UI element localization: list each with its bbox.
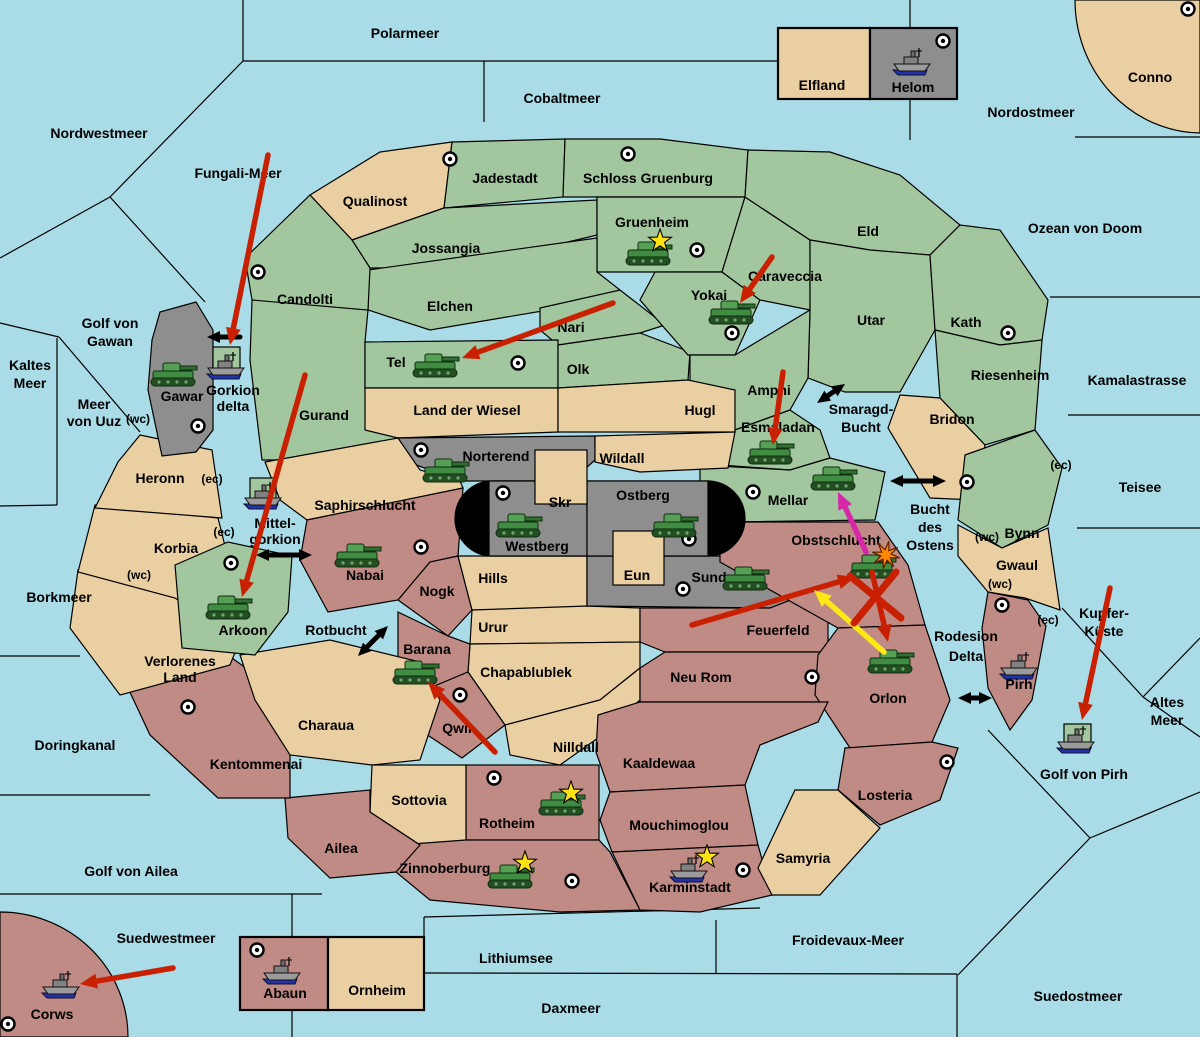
label-nordwestmeer: Nordwestmeer bbox=[50, 125, 148, 141]
label-polarmeer: Polarmeer bbox=[371, 25, 440, 41]
label-zinnoberburg: Zinnoberburg bbox=[400, 860, 491, 876]
label-suedwestmeer: Suedwestmeer bbox=[117, 930, 216, 946]
label-sund: Sund bbox=[692, 569, 727, 585]
label-delta: delta bbox=[217, 398, 250, 414]
label-cobaltmeer: Cobaltmeer bbox=[523, 90, 601, 106]
label-mellar: Mellar bbox=[768, 492, 809, 508]
label-des: des bbox=[918, 519, 942, 535]
label-ostens: Ostens bbox=[906, 537, 954, 553]
supply-center-norterend bbox=[415, 444, 428, 457]
label-verlorenes: Verlorenes bbox=[144, 653, 216, 669]
label-golf-von: Golf von bbox=[82, 315, 139, 331]
supply-center-tel bbox=[512, 357, 525, 370]
label-kentommenai: Kentommenai bbox=[210, 756, 303, 772]
coast-marker-ec: (ec) bbox=[201, 472, 222, 486]
supply-center-bridon bbox=[961, 476, 974, 489]
label-meer: Meer bbox=[14, 375, 47, 391]
label-kaltes: Kaltes bbox=[9, 357, 51, 373]
label-land: Land bbox=[163, 669, 196, 685]
label-jossangia: Jossangia bbox=[412, 240, 481, 256]
label-mouchimoglou: Mouchimoglou bbox=[629, 817, 729, 833]
supply-center-gruenheim bbox=[691, 244, 704, 257]
province-ornheim[interactable] bbox=[328, 937, 424, 1010]
label-gorkion: Gorkion bbox=[206, 382, 260, 398]
label-elfland: Elfland bbox=[799, 77, 846, 93]
label-feuerfeld: Feuerfeld bbox=[746, 622, 809, 638]
supply-center-schloss-gruenburg bbox=[622, 148, 635, 161]
label-utar: Utar bbox=[857, 312, 886, 328]
label-teisee: Teisee bbox=[1119, 479, 1162, 495]
label-lithiumsee: Lithiumsee bbox=[479, 950, 553, 966]
province-neu-rom[interactable] bbox=[640, 652, 828, 702]
label-land-der-wiesel: Land der Wiesel bbox=[413, 402, 520, 418]
supply-center-sund bbox=[677, 583, 690, 596]
supply-center-yokai bbox=[726, 327, 739, 340]
label-candolti: Candolti bbox=[277, 291, 333, 307]
supply-center-neu-rom bbox=[806, 671, 819, 684]
supply-center-kentommenai bbox=[182, 701, 195, 714]
label-heronn: Heronn bbox=[136, 470, 185, 486]
coast-marker-wc: (wc) bbox=[975, 530, 999, 544]
label-skr: Skr bbox=[549, 494, 572, 510]
supply-center-helom bbox=[937, 35, 950, 48]
label-delta: Delta bbox=[949, 648, 983, 664]
label-borkmeer: Borkmeer bbox=[26, 589, 92, 605]
label-conno: Conno bbox=[1128, 69, 1172, 85]
province-gruenheim[interactable] bbox=[597, 197, 745, 272]
label-altes: Altes bbox=[1150, 694, 1184, 710]
label-losteria: Losteria bbox=[858, 787, 913, 803]
label-arkoon: Arkoon bbox=[219, 622, 268, 638]
label-rodesion: Rodesion bbox=[934, 628, 998, 644]
label-wildall: Wildall bbox=[600, 450, 645, 466]
label-rotbucht: Rotbucht bbox=[305, 622, 367, 638]
supply-center-candolti bbox=[252, 266, 265, 279]
coast-marker-ec: (ec) bbox=[213, 525, 234, 539]
label-norterend: Norterend bbox=[463, 448, 530, 464]
label-ornheim: Ornheim bbox=[348, 982, 406, 998]
label-eun: Eun bbox=[624, 567, 650, 583]
label-tel: Tel bbox=[386, 354, 405, 370]
label-amphi: Amphi bbox=[747, 382, 791, 398]
label-barana: Barana bbox=[403, 641, 451, 657]
label-ostberg: Ostberg bbox=[616, 487, 670, 503]
label-hills: Hills bbox=[478, 570, 508, 586]
label-froidevaux-meer: Froidevaux-Meer bbox=[792, 932, 905, 948]
label-qualinost: Qualinost bbox=[343, 193, 408, 209]
label-ailea: Ailea bbox=[324, 840, 358, 856]
label-bynn: Bynn bbox=[1005, 525, 1040, 541]
supply-center-westberg bbox=[497, 487, 510, 500]
label-jadestadt: Jadestadt bbox=[472, 170, 538, 186]
label-samyria: Samyria bbox=[776, 850, 831, 866]
label-bucht: Bucht bbox=[841, 419, 881, 435]
supply-center-abaun bbox=[251, 944, 264, 957]
coast-marker-wc: (wc) bbox=[988, 577, 1012, 591]
supply-center-rotheim bbox=[488, 772, 501, 785]
supply-center-jadestadt bbox=[444, 153, 457, 166]
label-gruenheim: Gruenheim bbox=[615, 214, 689, 230]
coast-marker-wc: (wc) bbox=[127, 568, 151, 582]
label-corws: Corws bbox=[31, 1006, 74, 1022]
label-daxmeer: Daxmeer bbox=[541, 1000, 601, 1016]
label-golf-von-pirh: Golf von Pirh bbox=[1040, 766, 1128, 782]
supply-center-mellar bbox=[747, 486, 760, 499]
map-canvas: NordwestmeerPolarmeerCobaltmeerNordostme… bbox=[0, 0, 1200, 1037]
label-gawar: Gawar bbox=[161, 388, 204, 404]
label-doringkanal: Doringkanal bbox=[35, 737, 116, 753]
label-abaun: Abaun bbox=[263, 985, 307, 1001]
label-meer: Meer bbox=[78, 396, 111, 412]
label-saphirschlucht: Saphirschlucht bbox=[314, 497, 415, 513]
label-ozean-von-doom: Ozean von Doom bbox=[1028, 220, 1142, 236]
supply-center-conno bbox=[1182, 3, 1195, 16]
label-sottovia: Sottovia bbox=[391, 792, 446, 808]
label-kaaldewaa: Kaaldewaa bbox=[623, 755, 696, 771]
label-kath: Kath bbox=[950, 314, 981, 330]
label-neu-rom: Neu Rom bbox=[670, 669, 731, 685]
label-meer: Meer bbox=[1151, 712, 1184, 728]
supply-center-gawar bbox=[192, 420, 205, 433]
label-fungali-meer: Fungali-Meer bbox=[194, 165, 282, 181]
label-gwaul: Gwaul bbox=[996, 557, 1038, 573]
label-hugl: Hugl bbox=[684, 402, 715, 418]
supply-center-corws bbox=[2, 1018, 15, 1031]
label-olk: Olk bbox=[567, 361, 590, 377]
label-obstschlucht: Obstschlucht bbox=[791, 532, 881, 548]
supply-center-nabai bbox=[415, 541, 428, 554]
supply-center-arkoon bbox=[225, 557, 238, 570]
label-nordostmeer: Nordostmeer bbox=[987, 104, 1075, 120]
label-schloss-gruenburg: Schloss Gruenburg bbox=[583, 170, 713, 186]
label-chapablublek: Chapablublek bbox=[480, 664, 572, 680]
label-kamalastrasse: Kamalastrasse bbox=[1088, 372, 1187, 388]
label-gawan: Gawan bbox=[87, 333, 133, 349]
supply-center-kath bbox=[1002, 327, 1015, 340]
label-smaragd: Smaragd- bbox=[829, 401, 894, 417]
label-yokai: Yokai bbox=[691, 287, 727, 303]
label-gurand: Gurand bbox=[299, 407, 349, 423]
coast-marker-ec: (ec) bbox=[1050, 458, 1071, 472]
supply-center-losteria bbox=[941, 756, 954, 769]
province-schloss-gruenburg[interactable] bbox=[563, 139, 748, 197]
label-helom: Helom bbox=[892, 79, 935, 95]
label-nogk: Nogk bbox=[420, 583, 455, 599]
coast-marker-wc: (wc) bbox=[126, 412, 150, 426]
label-bucht: Bucht bbox=[910, 501, 950, 517]
supply-center-zinnoberburg bbox=[566, 875, 579, 888]
label-suedostmeer: Suedostmeer bbox=[1034, 988, 1123, 1004]
label-von-uuz: von Uuz bbox=[67, 413, 121, 429]
label-charaua: Charaua bbox=[298, 717, 354, 733]
label-nabai: Nabai bbox=[346, 567, 384, 583]
coast-marker-ec: (ec) bbox=[1037, 613, 1058, 627]
label-elchen: Elchen bbox=[427, 298, 473, 314]
label-orlon: Orlon bbox=[869, 690, 906, 706]
label-bridon: Bridon bbox=[929, 411, 974, 427]
label-golf-von-ailea: Golf von Ailea bbox=[84, 863, 178, 879]
supply-center-pirh bbox=[996, 599, 1009, 612]
label-nilldall: Nilldall bbox=[553, 739, 599, 755]
supply-center-qwil bbox=[454, 689, 467, 702]
game-map: NordwestmeerPolarmeerCobaltmeerNordostme… bbox=[0, 0, 1200, 1037]
label-westberg: Westberg bbox=[505, 538, 569, 554]
supply-center-karminstadt bbox=[737, 864, 750, 877]
label-eld: Eld bbox=[857, 223, 879, 239]
label-urur: Urur bbox=[478, 619, 508, 635]
label-korbia: Korbia bbox=[154, 540, 199, 556]
label-riesenheim: Riesenheim bbox=[971, 367, 1050, 383]
label-rotheim: Rotheim bbox=[479, 815, 535, 831]
